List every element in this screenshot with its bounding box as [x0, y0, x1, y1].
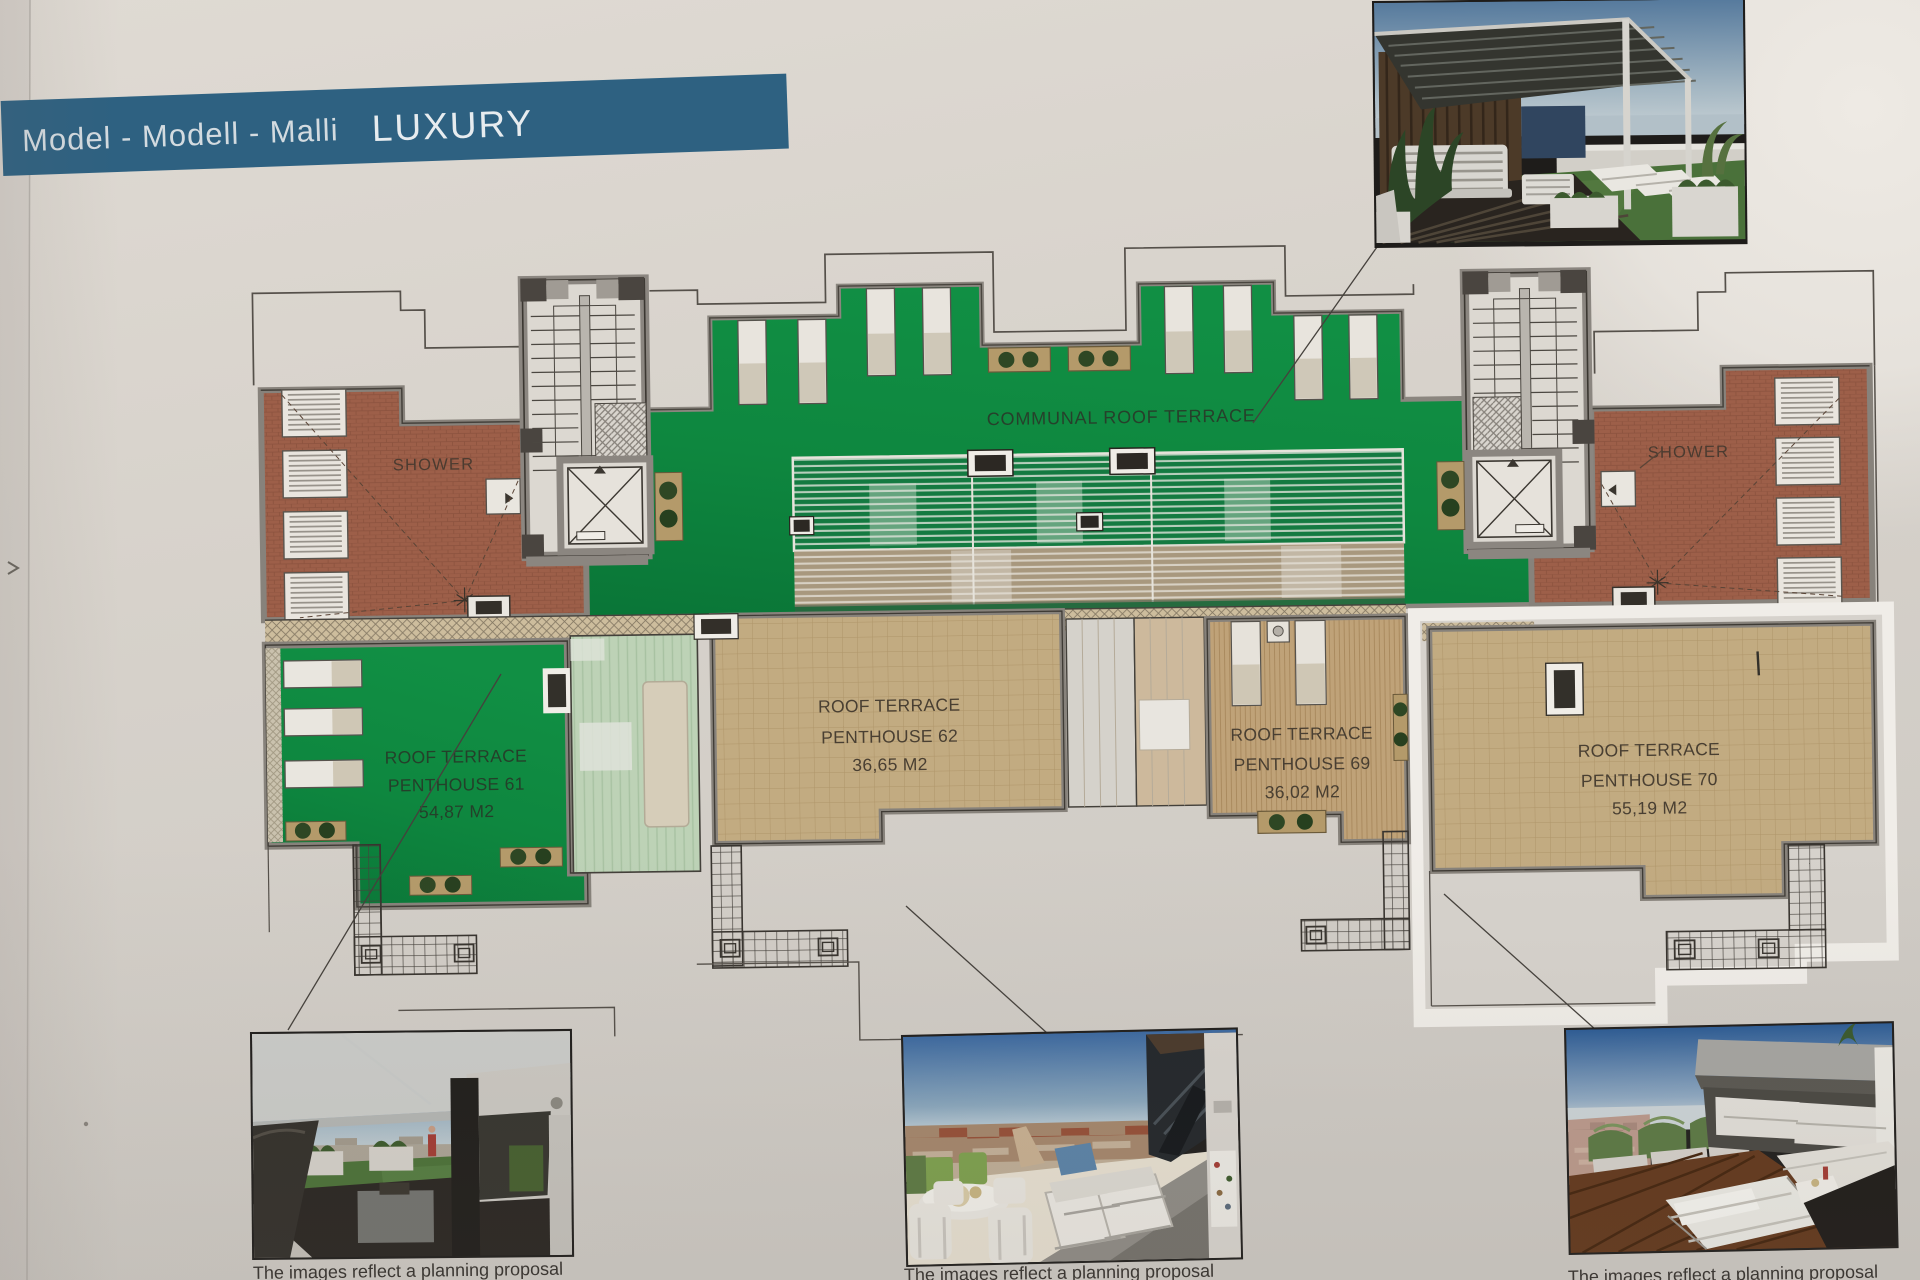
svg-text:PENTHOUSE 70: PENTHOUSE 70	[1581, 769, 1718, 791]
svg-text:SHOWER: SHOWER	[393, 455, 475, 474]
svg-text:PENTHOUSE 69: PENTHOUSE 69	[1234, 753, 1371, 775]
svg-text:PENTHOUSE 61: PENTHOUSE 61	[388, 774, 525, 796]
svg-text:54,87 M2: 54,87 M2	[419, 801, 495, 822]
svg-text:55,19 M2: 55,19 M2	[1612, 797, 1688, 818]
svg-text:COMMUNAL ROOF TERRACE: COMMUNAL ROOF TERRACE	[987, 405, 1256, 429]
svg-text:PENTHOUSE 62: PENTHOUSE 62	[821, 726, 958, 748]
svg-text:ROOF TERRACE: ROOF TERRACE	[818, 695, 961, 717]
svg-text:36,65 M2: 36,65 M2	[852, 754, 928, 775]
svg-text:ROOF TERRACE: ROOF TERRACE	[1578, 739, 1721, 761]
svg-text:36,02 M2: 36,02 M2	[1265, 781, 1341, 802]
svg-text:ROOF TERRACE: ROOF TERRACE	[1230, 723, 1373, 745]
svg-text:LUXURY: LUXURY	[371, 102, 534, 149]
